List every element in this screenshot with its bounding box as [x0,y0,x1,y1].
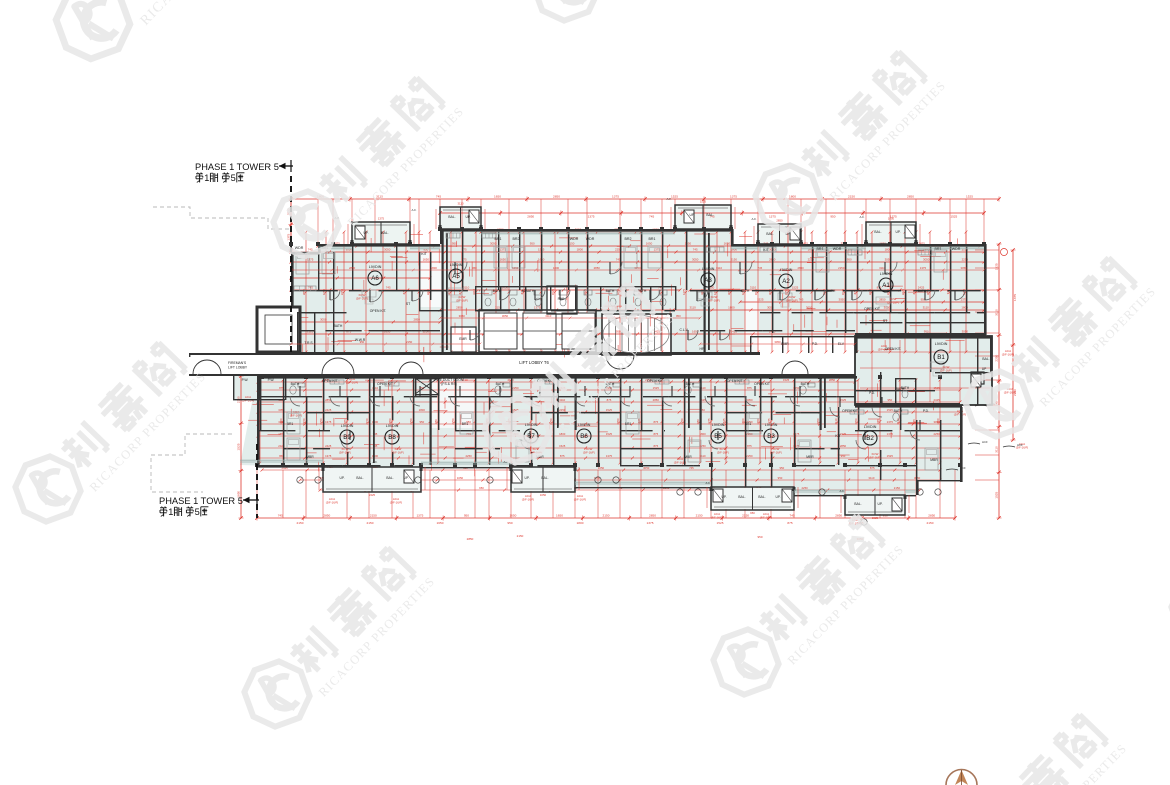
svg-text:LIFT LOBBY: LIFT LOBBY [228,366,248,370]
svg-text:A.F.: A.F. [667,197,672,201]
svg-text:2850: 2850 [553,194,560,198]
svg-text:1650: 1650 [888,217,895,221]
svg-text:2150: 2150 [406,340,413,344]
svg-text:1525: 1525 [887,454,894,458]
svg-text:2850: 2850 [649,513,656,517]
svg-text:2850: 2850 [653,398,660,402]
svg-text:WDR: WDR [833,247,842,251]
svg-text:950: 950 [464,513,469,517]
svg-text:B5: B5 [714,433,722,440]
svg-text:(5/F-16/F): (5/F-16/F) [390,500,403,504]
svg-text:P.W.: P.W. [242,378,249,382]
svg-text:LIV/DIN: LIV/DIN [341,424,354,428]
svg-text:1525: 1525 [872,516,879,520]
svg-text:A2: A2 [782,278,790,285]
svg-text:3050: 3050 [784,288,788,295]
svg-text:3050: 3050 [774,340,781,344]
svg-text:ST: ST [406,302,410,306]
svg-text:BATH: BATH [496,382,505,386]
svg-text:UP.: UP. [363,231,368,235]
svg-text:BAL.: BAL. [356,476,363,480]
svg-text:A.F.: A.F. [373,460,378,464]
svg-text:1525: 1525 [841,288,845,295]
svg-text:1525: 1525 [846,248,853,252]
svg-text:2850: 2850 [840,444,847,448]
svg-text:2150: 2150 [731,258,738,262]
svg-text:3110: 3110 [689,306,696,310]
svg-text:2850: 2850 [776,219,783,223]
svg-text:BAL.: BAL. [706,213,713,217]
svg-text:BR1: BR1 [495,237,502,241]
svg-text:P.W.: P.W. [268,378,275,382]
svg-text:1525: 1525 [887,408,894,412]
svg-text:(5/F-16/F): (5/F-16/F) [456,298,468,302]
svg-text:(5/F-16/F): (5/F-16/F) [717,450,729,454]
svg-text:950: 950 [750,511,755,515]
svg-text:1525: 1525 [754,288,758,295]
svg-text:OPEN KIT.: OPEN KIT. [370,309,386,313]
svg-text:950: 950 [830,215,835,219]
svg-text:B6: B6 [580,433,588,440]
svg-text:BATH: BATH [334,324,343,328]
svg-text:3110: 3110 [457,202,463,206]
svg-text:2250: 2250 [838,266,845,270]
svg-text:B1: B1 [937,354,945,361]
svg-text:1375: 1375 [769,215,776,219]
svg-text:BAL.: BAL. [386,476,393,480]
svg-text:1375: 1375 [887,420,894,424]
svg-text:EMR: EMR [459,337,467,341]
svg-text:1525: 1525 [792,286,799,290]
svg-text:2250: 2250 [699,444,706,448]
svg-text:1525: 1525 [966,194,973,198]
svg-text:1525: 1525 [606,432,613,436]
svg-text:HCF: HCF [1017,443,1023,447]
svg-text:950: 950 [676,314,681,318]
svg-text:(5/F-16/F): (5/F-16/F) [290,413,303,417]
svg-text:A.F.: A.F. [752,217,757,221]
svg-text:950: 950 [847,258,852,262]
svg-text:2850: 2850 [928,513,935,517]
svg-text:FIREMAN'S: FIREMAN'S [228,361,247,365]
svg-text:1650: 1650 [500,258,507,262]
svg-text:2425: 2425 [868,288,872,295]
svg-text:2850: 2850 [527,215,534,219]
svg-text:1525: 1525 [994,491,998,498]
svg-text:1650: 1650 [756,418,760,425]
svg-text:B8: B8 [388,434,396,441]
svg-text:1375: 1375 [378,217,385,221]
svg-text:1375: 1375 [920,266,927,270]
svg-text:1650: 1650 [322,288,326,295]
svg-text:(5/F-16/F): (5/F-16/F) [1004,390,1017,394]
svg-text:1375: 1375 [416,513,423,517]
svg-text:LIV/DIN: LIV/DIN [525,423,538,427]
svg-text:2150: 2150 [603,513,610,517]
svg-text:BAL.: BAL. [766,232,773,236]
svg-text:2150: 2150 [365,418,369,425]
svg-text:3110: 3110 [834,418,838,424]
svg-text:3050: 3050 [692,258,699,262]
svg-text:3110: 3110 [700,454,706,458]
svg-text:A6: A6 [371,275,379,282]
svg-text:1800: 1800 [789,194,796,198]
svg-text:BR1: BR1 [462,422,469,426]
svg-text:875: 875 [787,521,792,525]
svg-text:3050: 3050 [923,258,930,262]
svg-text:950: 950 [423,248,428,252]
svg-text:875: 875 [402,289,406,294]
svg-text:WDR: WDR [295,246,304,250]
svg-text:(5/F-16/F): (5/F-16/F) [708,298,720,302]
svg-text:875: 875 [853,289,857,294]
svg-text:2250: 2250 [746,454,753,458]
svg-text:LIV/DIN: LIV/DIN [578,423,591,427]
svg-text:BR1: BR1 [649,237,656,241]
svg-text:HR: HR [700,347,705,351]
svg-text:745: 745 [693,248,698,252]
svg-text:1800: 1800 [731,248,738,252]
svg-text:1800: 1800 [936,418,940,425]
svg-text:2250: 2250 [933,432,940,436]
svg-text:2150: 2150 [894,486,901,490]
svg-text:1650: 1650 [724,242,731,246]
svg-text:3050: 3050 [346,248,353,252]
svg-text:WDR: WDR [570,237,579,241]
svg-text:950: 950 [757,535,762,539]
svg-text:2150: 2150 [848,194,855,198]
svg-text:P.W.: P.W. [558,297,565,301]
svg-text:UP.: UP. [524,476,529,480]
svg-text:(5/F-16/F): (5/F-16/F) [356,296,368,300]
svg-text:745: 745 [946,289,950,294]
svg-text:3110: 3110 [463,286,470,290]
svg-text:MBR: MBR [306,455,314,459]
svg-text:1525: 1525 [700,200,707,204]
svg-text:3050: 3050 [768,288,772,295]
svg-text:2250: 2250 [559,408,566,412]
svg-text:745: 745 [436,194,441,198]
svg-text:3050: 3050 [384,248,391,252]
svg-text:2150: 2150 [742,513,749,517]
svg-text:(5/F-16/F): (5/F-16/F) [940,368,952,372]
svg-text:(5/F-16/F): (5/F-16/F) [392,450,404,454]
svg-text:1375: 1375 [1013,294,1017,301]
svg-text:BR2: BR2 [513,237,520,241]
svg-text:BR2: BR2 [625,237,632,241]
svg-text:2425: 2425 [840,432,847,436]
svg-text:(5/F-16/F): (5/F-16/F) [887,300,899,304]
svg-text:1800: 1800 [699,432,706,436]
svg-text:950: 950 [472,266,477,270]
svg-text:1525: 1525 [671,194,678,198]
svg-text:2250: 2250 [451,418,455,425]
svg-text:A.F.: A.F. [412,208,417,212]
svg-text:1800: 1800 [577,521,584,525]
svg-text:875: 875 [560,454,565,458]
svg-text:1800: 1800 [553,266,560,270]
svg-text:KIT: KIT [421,252,427,256]
svg-text:950: 950 [452,242,457,246]
svg-text:BATH: BATH [606,289,615,293]
svg-text:A.F.: A.F. [706,481,711,485]
svg-text:3050: 3050 [502,314,509,318]
svg-text:1650: 1650 [423,258,430,262]
svg-text:1650: 1650 [556,513,563,517]
svg-text:3050: 3050 [960,266,967,270]
svg-text:2850: 2850 [879,298,886,302]
svg-text:1800: 1800 [419,408,426,412]
svg-text:UP.: UP. [689,213,694,217]
svg-text:745: 745 [876,419,880,424]
svg-text:745: 745 [386,286,391,290]
svg-text:BAL.: BAL. [758,495,765,499]
svg-text:875: 875 [747,444,752,448]
svg-text:1525: 1525 [950,215,957,219]
svg-text:(5/F-16/F): (5/F-16/F) [711,515,724,519]
svg-text:2150: 2150 [367,521,374,525]
svg-text:2850: 2850 [797,266,804,270]
svg-text:(5/F-16/F): (5/F-16/F) [1002,352,1015,356]
svg-text:BR1: BR1 [817,247,824,251]
svg-text:950: 950 [530,242,535,246]
svg-text:(5/F-16/F): (5/F-16/F) [583,450,595,454]
svg-text:875: 875 [747,386,752,390]
svg-text:1525: 1525 [653,386,660,390]
svg-text:1525: 1525 [840,398,847,402]
svg-text:T.R.S.: T.R.S. [304,341,313,345]
svg-text:LIV/DIN: LIV/DIN [880,272,893,276]
svg-text:2250: 2250 [680,418,684,425]
svg-text:3110: 3110 [716,266,722,270]
svg-text:1800: 1800 [577,248,584,252]
svg-text:UP: UP [982,367,987,371]
svg-text:3050: 3050 [459,314,466,318]
svg-text:875: 875 [653,432,658,436]
svg-text:UP.: UP. [877,502,882,506]
svg-text:BATH: BATH [827,289,836,293]
svg-text:3110: 3110 [923,306,930,310]
svg-text:3110: 3110 [994,309,998,316]
svg-text:OPEN KIT: OPEN KIT [647,379,663,383]
svg-text:1375: 1375 [730,194,737,198]
svg-text:2425: 2425 [325,444,332,448]
svg-text:P.D.: P.D. [923,409,929,413]
svg-text:OPEN KIT: OPEN KIT [864,307,880,311]
svg-text:1375: 1375 [588,215,595,219]
svg-text:1650: 1650 [279,418,283,425]
svg-text:UP.: UP. [775,495,780,499]
svg-text:(5/F-16/F): (5/F-16/F) [522,497,535,501]
svg-text:BAL.: BAL. [448,215,455,219]
svg-text:KIT: KIT [835,434,840,438]
svg-text:(5/F-16/F): (5/F-16/F) [786,298,798,302]
svg-text:2150: 2150 [297,521,304,525]
svg-text:3050: 3050 [746,398,753,402]
svg-text:950: 950 [778,476,783,480]
svg-text:1375: 1375 [325,454,332,458]
svg-text:2250: 2250 [409,418,413,425]
svg-text:1650: 1650 [509,513,516,517]
svg-text:875: 875 [653,444,658,448]
svg-text:1650: 1650 [646,242,653,246]
svg-text:ST: ST [883,319,887,323]
svg-text:5: 5 [195,507,200,517]
svg-text:1525: 1525 [236,443,240,450]
svg-text:1375: 1375 [286,233,290,240]
svg-text:MBR: MBR [930,458,938,462]
svg-text:BAL.: BAL. [854,502,861,506]
svg-text:HCF: HCF [960,466,966,470]
svg-text:2150: 2150 [370,513,377,517]
svg-text:BATH: BATH [686,382,695,386]
svg-text:BATH: BATH [918,289,927,293]
svg-text:2150: 2150 [517,534,524,538]
svg-text:UP.: UP. [339,476,344,480]
svg-text:1800: 1800 [728,306,735,310]
svg-text:W.W.R: W.W.R [355,338,366,342]
svg-text:HCF: HCF [982,440,988,444]
svg-text:MBR: MBR [806,455,814,459]
svg-text:1375: 1375 [887,432,894,436]
svg-text:3050: 3050 [816,418,820,425]
svg-text:BR1: BR1 [287,422,294,426]
svg-text:LIV/DIN: LIV/DIN [780,268,793,272]
svg-text:3110: 3110 [372,386,378,390]
svg-text:(5/F-16/F): (5/F-16/F) [326,500,339,504]
svg-text:M.BATH: M.BATH [522,289,535,293]
svg-text:(5/F-16/F): (5/F-16/F) [339,450,351,454]
svg-text:1525: 1525 [994,263,998,270]
svg-text:2425: 2425 [901,288,905,295]
svg-text:1375: 1375 [682,288,686,295]
svg-text:BAL.: BAL. [738,495,745,499]
svg-text:2850: 2850 [594,266,601,270]
svg-text:2250: 2250 [801,486,808,490]
svg-text:P.D.: P.D. [812,342,818,346]
svg-text:OPEN KIT: OPEN KIT [377,382,393,386]
svg-text:B3: B3 [767,433,775,440]
svg-text:ELV: ELV [838,342,845,346]
svg-text:1800: 1800 [372,454,379,458]
svg-text:3110: 3110 [868,476,874,480]
svg-text:LIFT LOBBY T6: LIFT LOBBY T6 [519,360,549,365]
svg-text:950: 950 [696,419,700,424]
svg-text:745: 745 [649,215,654,219]
svg-text:950: 950 [779,466,784,470]
svg-text:950: 950 [841,454,846,458]
svg-text:LIV/DIN: LIV/DIN [369,265,382,269]
svg-text:EMR: EMR [781,342,789,346]
svg-text:LIV/DIN: LIV/DIN [935,342,948,346]
svg-text:875: 875 [653,420,658,424]
svg-text:BATH: BATH [741,289,750,293]
svg-text:2250: 2250 [512,386,519,390]
svg-text:BR1: BR1 [935,247,942,251]
svg-text:3110: 3110 [994,446,998,453]
svg-text:875: 875 [607,398,612,402]
svg-text:950: 950 [434,419,438,424]
svg-text:(5/F-16/F): (5/F-16/F) [574,497,587,501]
svg-text:745: 745 [278,513,283,517]
svg-text:2425: 2425 [426,288,430,295]
svg-text:1525: 1525 [606,408,613,412]
svg-text:BAL.: BAL. [982,357,989,361]
svg-text:3110: 3110 [559,398,565,402]
svg-text:1650: 1650 [457,476,464,480]
svg-text:BATH: BATH [291,382,300,386]
svg-text:950: 950 [887,398,892,402]
svg-text:BATH: BATH [896,387,905,391]
svg-text:950: 950 [479,486,484,490]
svg-text:(5/F-16/F): (5/F-16/F) [770,450,782,454]
svg-text:1375: 1375 [612,194,619,198]
svg-text:875: 875 [912,289,916,294]
svg-text:875: 875 [458,289,462,294]
svg-text:3110: 3110 [545,314,551,318]
svg-text:(5/F-16/F): (5/F-16/F) [346,380,359,384]
svg-text:UP.: UP. [465,215,470,219]
svg-text:2150: 2150 [696,513,703,517]
svg-text:LIV/DIN: LIV/DIN [450,263,463,267]
svg-text:1525: 1525 [559,444,566,448]
svg-text:2425: 2425 [583,288,587,295]
svg-text:2850: 2850 [467,537,474,541]
svg-text:1375: 1375 [707,418,711,425]
svg-text:5: 5 [231,173,236,183]
svg-text:2250: 2250 [994,354,998,361]
svg-text:(FS & RS): (FS & RS) [441,382,456,386]
svg-text:1800: 1800 [923,248,930,252]
svg-text:BATH: BATH [894,409,903,413]
svg-text:OPEN KIT.: OPEN KIT. [727,379,743,383]
svg-text:(5/F-16/F): (5/F-16/F) [760,515,773,519]
svg-text:BAL.: BAL. [381,231,388,235]
svg-text:1650: 1650 [494,194,501,198]
svg-text:UP.: UP. [895,230,900,234]
svg-text:UP.: UP. [721,495,726,499]
svg-text:1525: 1525 [717,521,724,525]
svg-text:OPEN KIT.: OPEN KIT. [885,347,901,351]
svg-text:A.F.: A.F. [860,215,865,219]
svg-text:B2: B2 [866,435,874,442]
svg-text:3050: 3050 [854,418,858,425]
svg-text:LIV/DIN: LIV/DIN [702,267,715,271]
svg-text:1375: 1375 [325,420,332,424]
svg-text:PHASE 1 TOWER 5: PHASE 1 TOWER 5 [195,162,279,172]
svg-text:LIV/DIN: LIV/DIN [765,423,778,427]
svg-text:A1: A1 [882,282,890,289]
svg-text:C.L.V.: C.L.V. [679,328,688,332]
svg-text:1: 1 [204,173,209,183]
svg-text:(5/F-16/F): (5/F-16/F) [869,455,881,459]
svg-text:A5: A5 [452,273,460,280]
svg-text:2150: 2150 [302,418,306,425]
svg-text:950: 950 [507,521,512,525]
svg-text:WDR: WDR [586,237,595,241]
svg-text:OPEN KIT: OPEN KIT [842,409,858,413]
svg-text:1375: 1375 [647,521,654,525]
svg-text:3050: 3050 [727,288,731,295]
svg-text:1800: 1800 [372,420,379,424]
svg-text:1650: 1650 [437,521,444,525]
svg-text:BATH: BATH [493,289,502,293]
svg-text:3050: 3050 [838,298,845,302]
svg-text:BAL.: BAL. [541,476,548,480]
svg-text:2850: 2850 [907,194,914,198]
svg-text:UP.: UP. [403,476,408,480]
svg-text:1650: 1650 [540,493,547,497]
